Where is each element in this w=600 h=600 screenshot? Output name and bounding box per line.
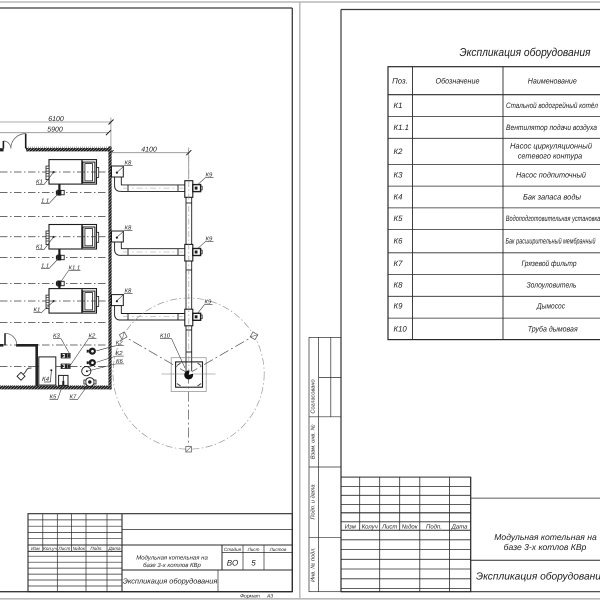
svg-text:6100: 6100 bbox=[48, 116, 64, 123]
svg-text:К7: К7 bbox=[394, 259, 404, 268]
svg-text:Дымосос: Дымосос bbox=[536, 302, 565, 311]
svg-text:базе 3-х котлов КВр: базе 3-х котлов КВр bbox=[504, 542, 587, 552]
svg-text:Модульная котельная на: Модульная котельная на bbox=[136, 555, 208, 562]
svg-text:К1.1: К1.1 bbox=[394, 123, 409, 132]
svg-text:базе 3-х котлов КВр: базе 3-х котлов КВр bbox=[143, 562, 201, 569]
svg-text:Изм: Изм bbox=[345, 524, 356, 531]
svg-text:ВО: ВО bbox=[227, 559, 238, 568]
svg-text:К5: К5 bbox=[394, 214, 404, 223]
svg-text:Экспликация оборудования: Экспликация оборудования bbox=[460, 47, 591, 59]
svg-text:Подп.: Подп. bbox=[426, 524, 442, 531]
svg-text:Труба дымовая: Труба дымовая bbox=[528, 325, 579, 334]
svg-text:Обозначение: Обозначение bbox=[436, 77, 481, 86]
svg-text:Изм: Изм bbox=[31, 546, 40, 551]
svg-text:№док: №док bbox=[73, 546, 86, 551]
svg-text:Наименование: Наименование bbox=[528, 77, 578, 86]
svg-text:Экспликация оборудования: Экспликация оборудования bbox=[476, 572, 600, 583]
svg-text:Подп. и дата: Подп. и дата bbox=[310, 484, 317, 519]
svg-text:Водоподготовительная установка: Водоподготовительная установка bbox=[506, 214, 600, 223]
svg-text:Модульная котельная на: Модульная котельная на bbox=[494, 532, 597, 542]
svg-text:5: 5 bbox=[251, 559, 256, 568]
svg-text:Дата: Дата bbox=[107, 546, 121, 551]
svg-text:Дата: Дата bbox=[451, 524, 468, 531]
svg-text:К2: К2 bbox=[394, 147, 404, 156]
svg-text:Золоуловитель: Золоуловитель bbox=[527, 281, 577, 290]
svg-text:Поз.: Поз. bbox=[392, 77, 408, 86]
svg-text:Лист: Лист bbox=[57, 546, 70, 551]
svg-text:Экспликация оборудования: Экспликация оборудования bbox=[123, 577, 218, 586]
svg-text:К4: К4 bbox=[394, 192, 404, 201]
svg-text:Стальной водогрейный котёл: Стальной водогрейный котёл bbox=[506, 101, 598, 110]
svg-text:4100: 4100 bbox=[141, 147, 157, 154]
svg-text:Согласовано: Согласовано bbox=[311, 379, 317, 413]
svg-text:К10: К10 bbox=[394, 325, 408, 334]
svg-text:Листов: Листов bbox=[269, 547, 287, 552]
svg-text:Вентилятор подачи воздуха: Вентилятор подачи воздуха bbox=[506, 123, 598, 132]
svg-text:Лист: Лист bbox=[247, 547, 260, 552]
svg-text:Подп.: Подп. bbox=[90, 546, 102, 551]
svg-text:Насос подпиточный: Насос подпиточный bbox=[516, 171, 587, 180]
svg-text:5900: 5900 bbox=[47, 127, 63, 134]
svg-text:А3: А3 bbox=[266, 594, 273, 600]
svg-text:Кол.уч: Кол.уч bbox=[43, 546, 57, 551]
svg-text:Инв. № подл.: Инв. № подл. bbox=[310, 547, 317, 582]
svg-text:К3: К3 bbox=[394, 171, 404, 180]
svg-text:Взам. инв. №: Взам. инв. № bbox=[311, 424, 317, 459]
svg-text:К9: К9 bbox=[394, 302, 404, 311]
svg-text:Насос циркуляционный: Насос циркуляционный bbox=[510, 142, 593, 151]
svg-text:Стадия: Стадия bbox=[224, 547, 242, 552]
svg-text:№док: №док bbox=[402, 524, 419, 531]
svg-text:К8: К8 bbox=[394, 281, 404, 290]
svg-text:Грязевой фильтр: Грязевой фильтр bbox=[522, 259, 578, 268]
svg-text:сетевого контура: сетевого контура bbox=[518, 152, 583, 161]
svg-text:Колуч: Колуч bbox=[362, 524, 378, 531]
svg-text:Лист: Лист bbox=[381, 524, 397, 531]
svg-text:Формат: Формат bbox=[240, 594, 260, 600]
svg-text:Бак расширительный мембранный: Бак расширительный мембранный bbox=[506, 237, 596, 246]
svg-text:Бак запаса воды: Бак запаса воды bbox=[523, 192, 581, 201]
svg-text:К6: К6 bbox=[394, 237, 404, 246]
svg-text:К1: К1 bbox=[394, 101, 403, 110]
